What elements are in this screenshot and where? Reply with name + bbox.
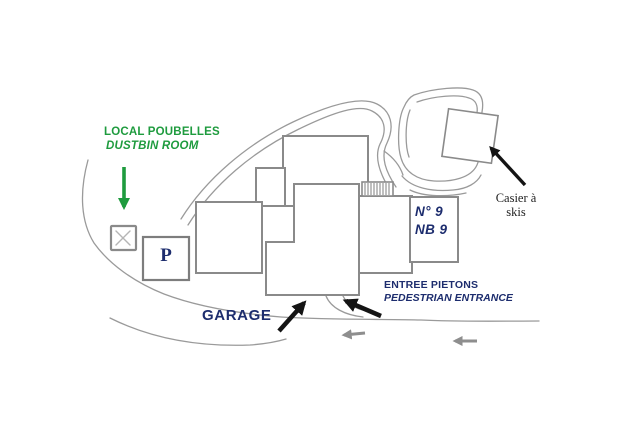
ski-locker-arrow <box>491 148 525 185</box>
ski-loop-inner-left <box>406 110 410 157</box>
ski-locker-box <box>442 109 498 163</box>
dustbin-box <box>111 226 136 250</box>
pedestrian-entrance-label-en: PEDESTRIAN ENTRANCE <box>384 292 513 304</box>
ski-locker-label: Casier à skis <box>484 191 548 219</box>
garage-label: GARAGE <box>202 307 271 324</box>
building-number-line2: NB 9 <box>415 221 447 239</box>
ski-locker-label-line1: Casier à <box>484 191 548 205</box>
direction-arrow-1 <box>344 333 365 335</box>
parking-label: P <box>143 246 189 265</box>
building-number-line1: N° 9 <box>415 203 447 221</box>
pedestrian-entrance-arrow <box>346 301 381 316</box>
dustbin-label-fr: LOCAL POUBELLES <box>104 126 220 138</box>
dustbin-label-en: DUSTBIN ROOM <box>106 140 198 152</box>
building-right-annex <box>357 196 412 273</box>
stairs <box>362 182 393 196</box>
site-plan: LOCAL POUBELLES DUSTBIN ROOM P N° 9 NB 9… <box>0 0 640 433</box>
building-left-wing <box>196 202 262 273</box>
pedestrian-entrance-label-fr: ENTREE PIETONS <box>384 279 478 291</box>
building-number-label: N° 9 NB 9 <box>415 203 447 239</box>
ski-locker-label-line2: skis <box>484 205 548 219</box>
building-upper-step <box>256 168 285 206</box>
ski-loop-inner-top <box>417 96 477 113</box>
ski-loop-tail-1 <box>402 175 481 190</box>
